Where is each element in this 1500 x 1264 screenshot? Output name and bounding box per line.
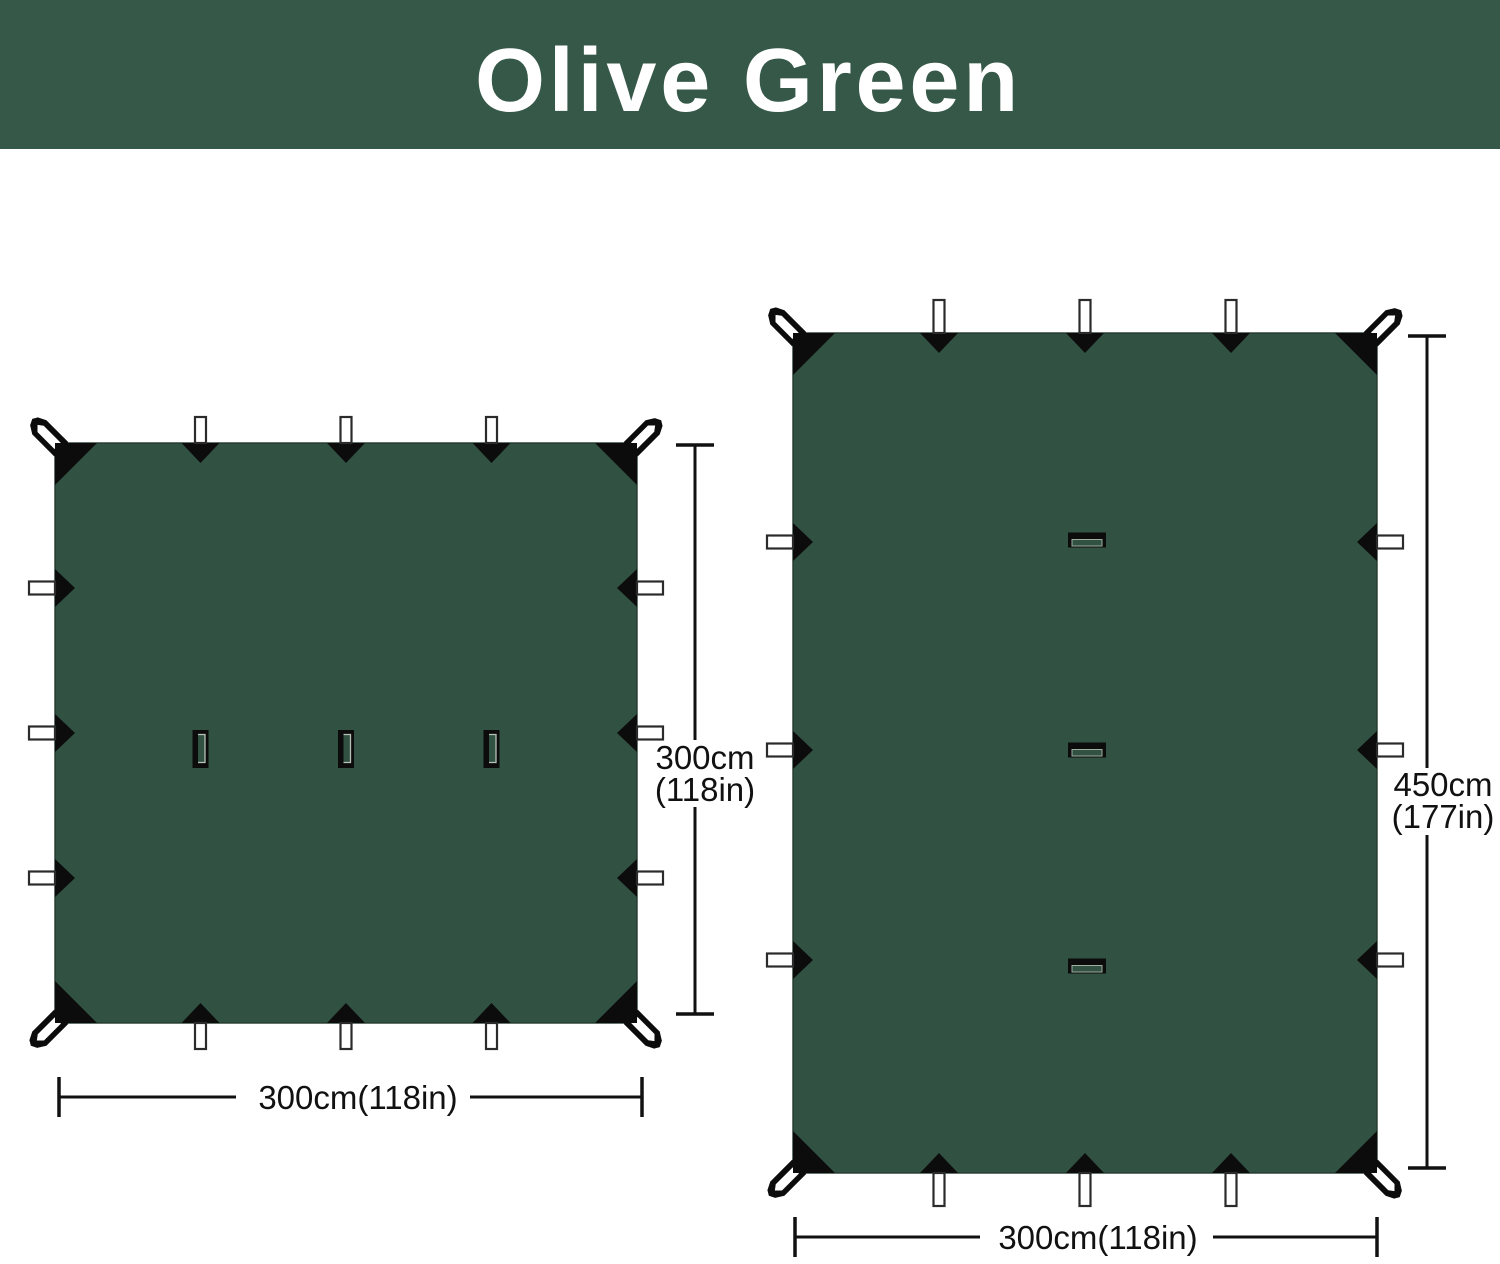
svg-text:Olive Green: Olive Green <box>475 31 1022 131</box>
svg-text:300cm(118in): 300cm(118in) <box>258 1079 457 1116</box>
svg-text:300cm(118in): 300cm(118in) <box>998 1219 1197 1256</box>
svg-text:(118in): (118in) <box>655 771 755 808</box>
svg-text:(177in): (177in) <box>1392 798 1495 835</box>
